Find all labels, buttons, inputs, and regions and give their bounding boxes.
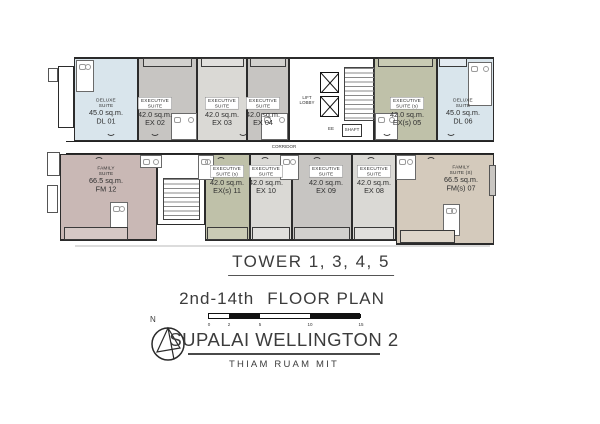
door-arc <box>106 126 116 136</box>
stairs-icon <box>163 178 200 220</box>
balcony <box>143 58 192 67</box>
stairs-icon <box>344 67 375 121</box>
ground-shadow <box>75 245 490 247</box>
service-nook <box>47 185 58 213</box>
unit-label-ex-10: EXECUTIVESUITE 42.0 sq.m.EX 10 <box>249 165 283 195</box>
unit-label-ex-s-05: EXECUTIVESUITE (s) 42.0 sq.m.EX(s) 05 <box>390 97 424 127</box>
shaft-label: SHAFT <box>345 127 360 132</box>
balcony <box>64 227 128 240</box>
floor-plan-title: 2nd-14thFLOOR PLAN <box>179 289 385 309</box>
unit-label-ex-04: EXECUTIVESUITE 42.0 sq.m.EX 04 <box>246 97 280 127</box>
door-arc <box>382 126 392 136</box>
balcony <box>207 227 248 240</box>
side-balcony <box>489 165 496 196</box>
unit-label-dl-01: DELUXESUITE 45.0 sq.m.DL 01 <box>89 97 123 125</box>
unit-label-ex-02: EXECUTIVESUITE 42.0 sq.m.EX 02 <box>138 97 172 127</box>
unit-label-ex-09: EXECUTIVESUITE 42.0 sq.m.EX 09 <box>309 165 343 195</box>
balcony <box>354 227 394 240</box>
scale-bar-segment <box>229 314 260 318</box>
door-arc <box>150 126 160 136</box>
floor-range: 2nd-14th <box>179 289 254 308</box>
bathroom-pod <box>396 155 416 180</box>
unit-label-ex-08: EXECUTIVESUITE 42.0 sq.m.EX 08 <box>357 165 391 195</box>
balcony <box>400 230 455 243</box>
balcony <box>294 227 350 240</box>
balcony <box>201 58 244 67</box>
corridor-label: CORRIDOR <box>272 144 297 149</box>
scale-tick: 0 <box>208 322 211 327</box>
ee-label: EE <box>328 126 334 131</box>
door-arc <box>446 126 456 136</box>
scale-tick: 15 <box>358 322 363 327</box>
lift-icon <box>320 72 339 93</box>
bathroom-pod <box>171 113 197 140</box>
project-title: SUPALAI WELLINGTON 2 <box>169 329 398 351</box>
floor-plan-sheet: LIFTLOBBY EE SHAFT CORRIDOR <box>0 0 600 424</box>
balcony <box>378 58 433 67</box>
balcony <box>252 227 290 240</box>
service-nook <box>47 152 60 176</box>
scale-bar-segment <box>310 314 361 318</box>
left-end-service-rooms <box>58 66 74 128</box>
unit-label-fm-s-07: FAMILYSUITE (S) 66.5 sq.m.FM(s) 07 <box>444 164 478 192</box>
lift-lobby-label: LIFTLOBBY <box>299 95 314 105</box>
project-subtitle: THIAM RUAM MIT <box>229 359 339 370</box>
floor-plan-label: FLOOR PLAN <box>267 289 385 308</box>
scale-tick: 2 <box>228 322 231 327</box>
scale-tick: 10 <box>307 322 312 327</box>
door-arc <box>426 157 436 167</box>
lift-icon <box>320 96 339 117</box>
door-arc <box>238 126 248 136</box>
bathroom-pod <box>76 60 94 92</box>
balcony <box>439 58 467 67</box>
balcony <box>250 58 286 67</box>
unit-label-ex-s-11: EXECUTIVESUITE (s) 42.0 sq.m.EX(s) 11 <box>210 165 244 195</box>
service-nook <box>48 68 58 82</box>
scale-bar: 0 2 5 10 15 <box>208 313 360 319</box>
unit-label-ex-03: EXECUTIVESUITE 42.0 sq.m.EX 03 <box>205 97 239 127</box>
tower-title: TOWER 1, 3, 4, 5 <box>228 252 394 276</box>
unit-label-fm-12: FAMILYSUITE 66.5 sq.m.FM 12 <box>89 165 123 193</box>
project-title-underline <box>188 353 380 355</box>
scale-tick: 5 <box>259 322 262 327</box>
bathroom-pod <box>140 155 162 168</box>
unit-label-dl-06: DELUXESUITE 45.0 sq.m.DL 06 <box>446 97 480 125</box>
